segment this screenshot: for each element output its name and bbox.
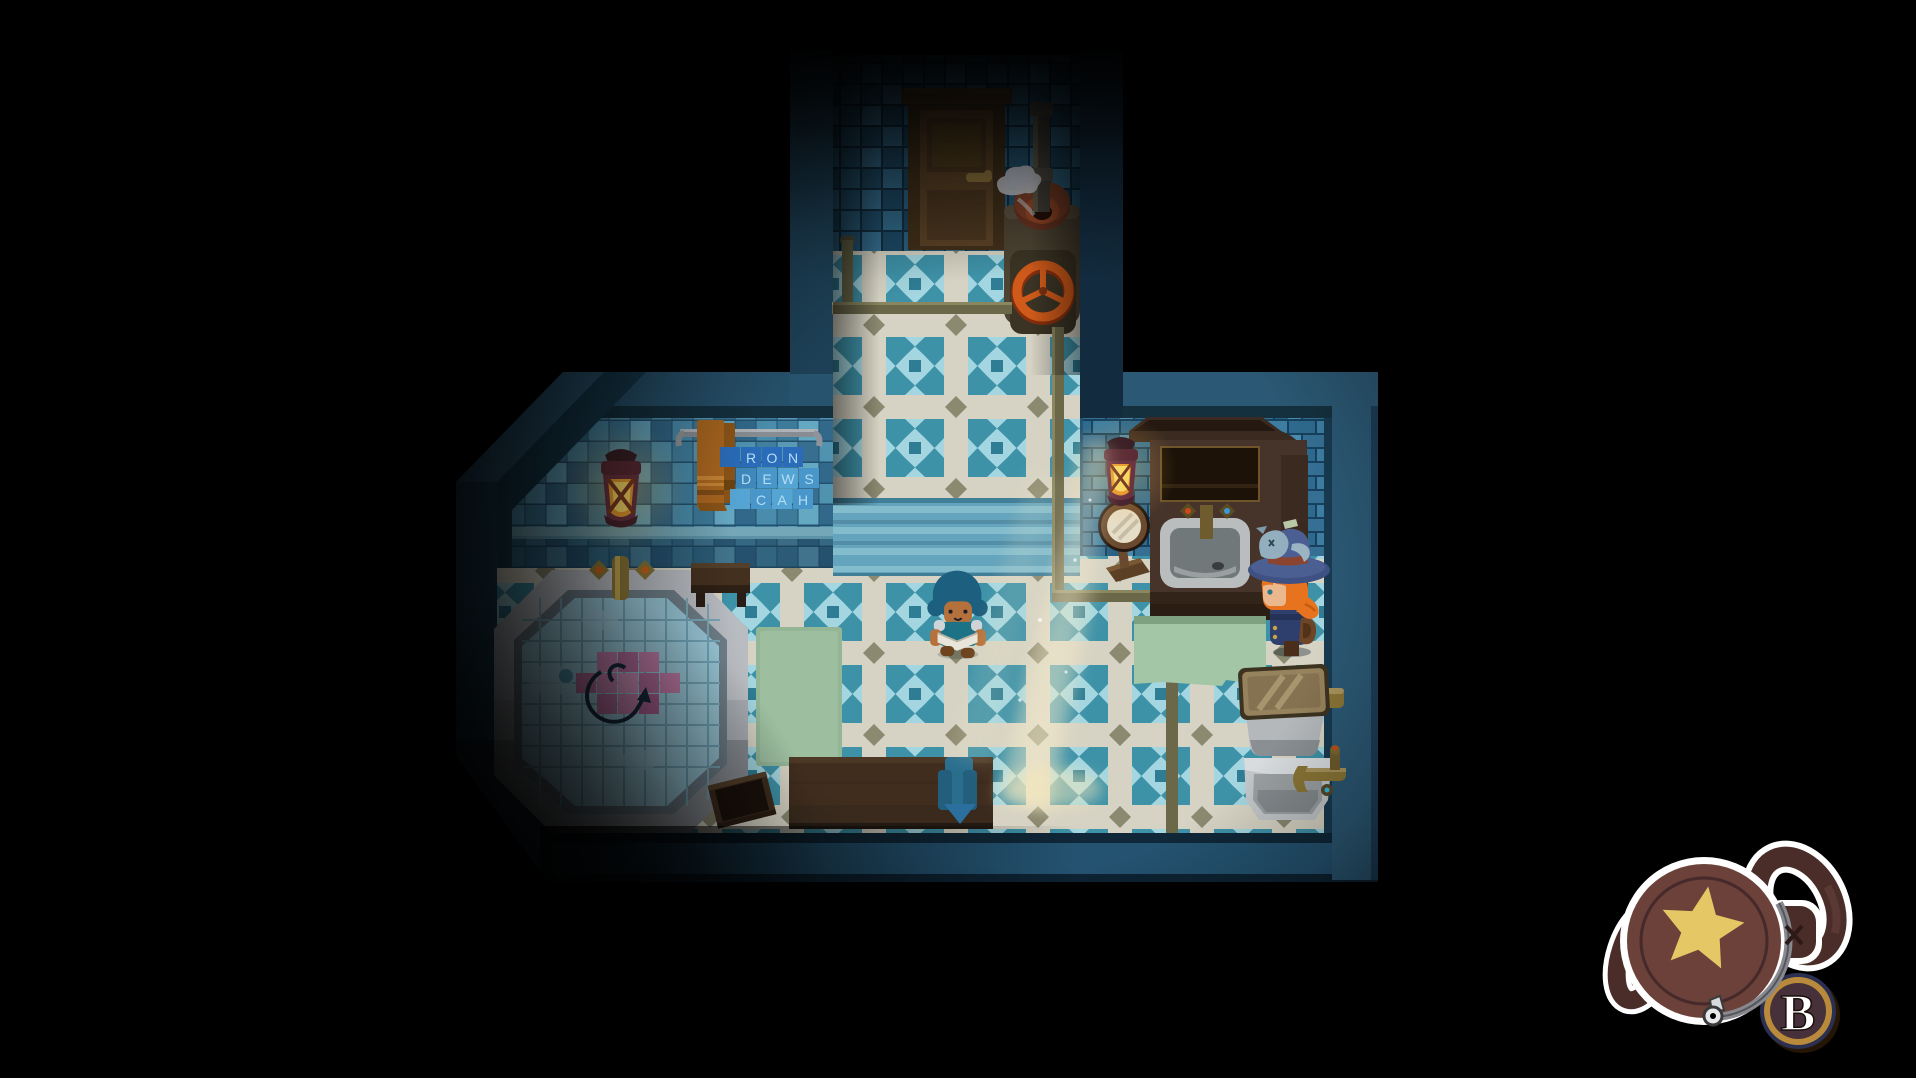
svg-text:B: B (1781, 985, 1816, 1042)
